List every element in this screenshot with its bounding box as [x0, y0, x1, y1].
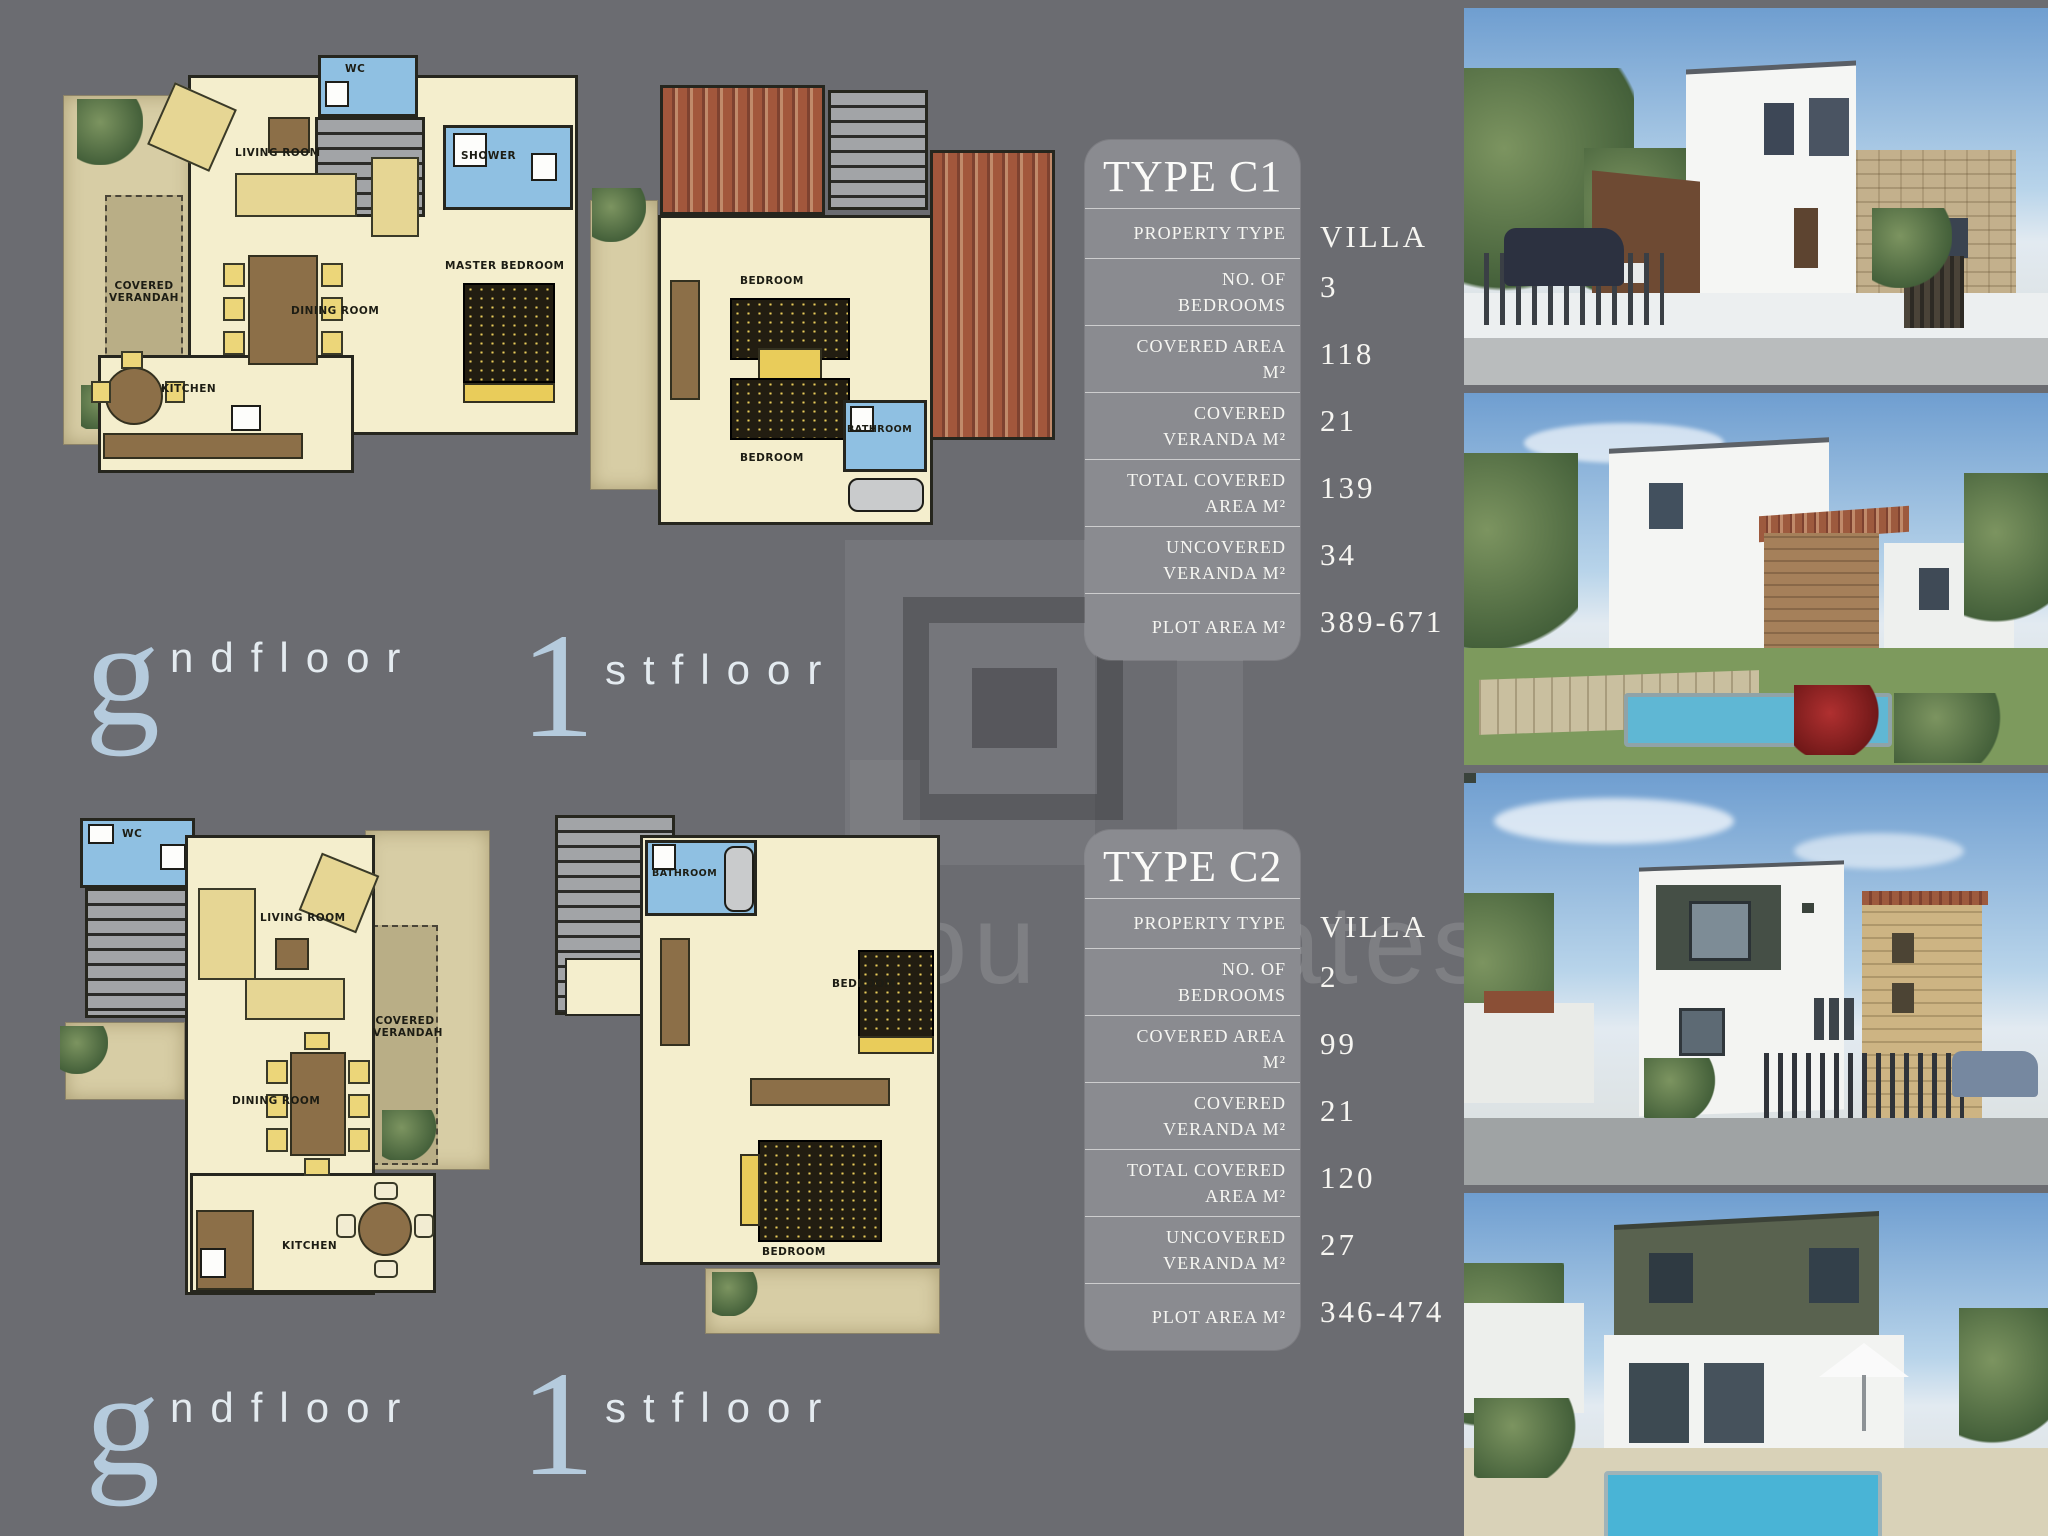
car — [1504, 228, 1624, 286]
stove — [231, 405, 261, 431]
tiled-roof — [660, 85, 825, 215]
wardrobe — [660, 938, 690, 1046]
chair — [414, 1214, 434, 1238]
spec-value: 2 — [1320, 959, 1339, 995]
neighbor-houses — [1464, 1303, 1584, 1413]
spec-value: VILLA — [1320, 909, 1428, 945]
spec-value: 27 — [1320, 1227, 1357, 1263]
staircase — [85, 888, 197, 1018]
railing-gate — [1764, 1053, 1964, 1119]
spec-value: 21 — [1320, 403, 1357, 439]
chair — [223, 331, 245, 355]
window — [1649, 1253, 1693, 1303]
room-label: SHOWER — [461, 150, 516, 162]
spec-panel: TYPE C1 PROPERTY TYPE VILLA NO. OF BEDRO… — [1085, 140, 1300, 660]
spec-value: VILLA — [1320, 219, 1428, 255]
room-label: BEDROOM — [740, 275, 804, 287]
room-label: BEDROOM — [740, 452, 804, 464]
basin — [88, 824, 114, 844]
decor-shape: TOTAL COVERED AREA M² — [1116, 467, 1286, 519]
chair — [348, 1094, 370, 1118]
caption-big-letter: g — [85, 1378, 160, 1471]
umbrella-pole — [1862, 1375, 1866, 1431]
spec-row: TOTAL COVERED AREA M² 139 — [1085, 459, 1300, 526]
spec-row: TOTAL COVERED AREA M² 120 — [1085, 1149, 1300, 1216]
decor-shape: COVERED AREA M² — [1116, 1023, 1286, 1075]
floorplan-c2-ground: COVERED VERANDAH WC LIVING ROOM DINING R… — [60, 810, 490, 1300]
window — [1689, 901, 1751, 961]
chair — [304, 1158, 330, 1176]
caption-rest: ndfloor — [170, 1384, 417, 1432]
decor-shape: PLOT AREA M² — [1116, 1304, 1286, 1330]
room-label: BEDROOM — [762, 1246, 826, 1258]
caption-gnd-floor-c2: g ndfloor — [85, 1378, 417, 1471]
sofa — [371, 157, 419, 237]
spec-value: 99 — [1320, 1026, 1357, 1062]
chair — [336, 1214, 356, 1238]
spec-row: PROPERTY TYPE VILLA — [1085, 898, 1300, 948]
chair — [304, 1032, 330, 1050]
room-label: MASTER BEDROOM — [445, 260, 565, 272]
decor-shape: NO. OF BEDROOMS — [1116, 266, 1286, 318]
car — [1952, 1051, 2038, 1097]
room-label: BEDROOM — [832, 978, 896, 990]
spec-row: COVERED VERANDA M² 21 — [1085, 1082, 1300, 1149]
spec-value: 34 — [1320, 537, 1357, 573]
sofa — [235, 173, 357, 217]
plant — [592, 188, 646, 242]
toilet-fixture — [160, 844, 186, 870]
caption-big-letter: g — [85, 628, 160, 721]
spec-value: 139 — [1320, 470, 1376, 506]
room-label: BATHROOM — [847, 424, 912, 435]
bed — [463, 283, 555, 383]
neighbor-houses — [1464, 1003, 1594, 1103]
decor-shape: COVERED VERANDA M² — [1116, 400, 1286, 452]
villa-photo-4 — [1464, 1193, 2048, 1536]
driveway — [1464, 338, 2048, 385]
room-label: COVERED VERANDAH — [373, 1015, 437, 1039]
bed — [858, 950, 934, 1044]
chair — [321, 263, 343, 287]
decor-shape: NO. OF BEDROOMS — [1116, 956, 1286, 1008]
bed — [730, 378, 850, 440]
spec-value: 389-671 — [1320, 604, 1444, 640]
road — [1464, 1118, 2048, 1185]
caption-big-letter: 1 — [520, 640, 595, 733]
sofa — [245, 978, 345, 1020]
window — [1649, 483, 1683, 529]
window-slit — [1829, 998, 1839, 1040]
window — [1892, 933, 1914, 963]
tiled-roof-cap — [1862, 891, 1988, 905]
bed-foot — [858, 1036, 934, 1054]
patio-door — [1629, 1363, 1689, 1443]
door — [1794, 208, 1818, 268]
room-label: LIVING ROOM — [260, 912, 346, 924]
red-flowers — [1794, 685, 1884, 755]
spec-value: 120 — [1320, 1160, 1376, 1196]
window — [1809, 98, 1849, 156]
room-label: WC — [345, 63, 365, 75]
decor-shape: COVERED AREA M² — [1116, 333, 1286, 385]
caption-big-letter: 1 — [520, 1378, 595, 1471]
room-label: KITCHEN — [282, 1240, 337, 1252]
villa-photo-3 — [1464, 773, 2048, 1185]
bed — [758, 1140, 882, 1242]
coffee-table — [275, 938, 309, 970]
vent — [1802, 903, 1814, 913]
plant — [60, 1026, 108, 1074]
vent — [1464, 773, 1476, 783]
chair — [321, 331, 343, 355]
floorplan-c1-first: BEDROOM BEDROOM BATHROOM — [590, 80, 1060, 530]
shrubs — [1894, 693, 2014, 763]
room-label: DINING ROOM — [232, 1095, 320, 1107]
window — [1892, 983, 1914, 1013]
shrub — [1872, 208, 1952, 288]
chair — [223, 263, 245, 287]
neighbor-roof — [1484, 991, 1554, 1013]
bed-head — [740, 1154, 760, 1226]
patio-door — [1704, 1363, 1764, 1443]
window — [1809, 1248, 1859, 1303]
room-label: COVERED VERANDAH — [107, 280, 181, 304]
caption-rest: stfloor — [605, 1384, 838, 1432]
bathtub — [848, 478, 924, 512]
room-label: DINING ROOM — [291, 305, 379, 317]
trees — [1964, 473, 2048, 643]
cloud — [1494, 798, 1734, 844]
decor-shape: UNCOVERED VERANDA M² — [1116, 534, 1286, 586]
spec-panel: TYPE C2 PROPERTY TYPE VILLA NO. OF BEDRO… — [1085, 830, 1300, 1350]
spec-row: COVERED VERANDA M² 21 — [1085, 392, 1300, 459]
spec-row: COVERED AREA M² 118 — [1085, 325, 1300, 392]
chair — [374, 1182, 398, 1200]
caption-rest: stfloor — [605, 646, 838, 694]
window-slit — [1844, 998, 1854, 1040]
tiled-roof — [930, 150, 1055, 440]
room-label: KITCHEN — [161, 383, 216, 395]
chair — [348, 1128, 370, 1152]
plant — [712, 1272, 758, 1316]
spec-value: 21 — [1320, 1093, 1357, 1129]
window-slit — [1814, 998, 1824, 1040]
wardrobe — [670, 280, 700, 400]
toilet-fixture — [652, 844, 676, 870]
decor-shape: UNCOVERED VERANDA M² — [1116, 1224, 1286, 1276]
stove — [200, 1248, 226, 1278]
spec-row: PROPERTY TYPE VILLA — [1085, 208, 1300, 258]
sofa — [198, 888, 256, 980]
kitchen-counter — [103, 433, 303, 459]
brochure-page: ou Estates COVERED VERANDAH WC SHOWER LI… — [0, 0, 2048, 1536]
kitchen-table — [358, 1202, 412, 1256]
swimming-pool — [1604, 1471, 1882, 1536]
caption-rest: ndfloor — [170, 634, 417, 682]
window — [1919, 568, 1949, 610]
hedge — [1474, 1398, 1584, 1478]
chair — [374, 1260, 398, 1278]
spec-row: PLOT AREA M² 389-671 — [1085, 593, 1300, 660]
spec-table-c2: TYPE C2 PROPERTY TYPE VILLA NO. OF BEDRO… — [1085, 830, 1300, 1350]
toilet-fixture — [531, 153, 557, 181]
chair — [348, 1060, 370, 1084]
chair — [266, 1128, 288, 1152]
room-label: WC — [122, 828, 142, 840]
plant — [382, 1110, 438, 1160]
spec-value: 118 — [1320, 336, 1374, 372]
caption-gnd-floor-c1: g ndfloor — [85, 628, 417, 721]
bed-foot — [463, 383, 555, 403]
spec-table-c1: TYPE C1 PROPERTY TYPE VILLA NO. OF BEDRO… — [1085, 140, 1300, 660]
spec-title: TYPE C2 — [1085, 830, 1300, 898]
toilet-fixture — [325, 81, 349, 107]
trees — [1959, 1308, 2048, 1458]
caption-1st-floor-c2: 1 stfloor — [520, 1378, 838, 1471]
spec-row: NO. OF BEDROOMS 3 — [1085, 258, 1300, 325]
decor-shape: TOTAL COVERED AREA M² — [1116, 1157, 1286, 1209]
shrub — [1644, 1058, 1718, 1122]
trees — [1464, 453, 1578, 673]
window — [1679, 1008, 1725, 1056]
decor-shape: PLOT AREA M² — [1116, 614, 1286, 640]
stone-entrance-tower — [1764, 533, 1879, 658]
decor-shape: PROPERTY TYPE — [1116, 910, 1286, 936]
room-label: BATHROOM — [652, 868, 717, 879]
villa-photo-2 — [1464, 393, 2048, 765]
caption-1st-floor-c1: 1 stfloor — [520, 640, 838, 733]
spec-row: UNCOVERED VERANDA M² 34 — [1085, 526, 1300, 593]
decor-shape: PROPERTY TYPE — [1116, 220, 1286, 246]
spec-value: 3 — [1320, 269, 1339, 305]
cloud — [1794, 833, 1964, 869]
floorplan-c2-first: BATHROOM BEDROOM BEDROOM — [540, 810, 960, 1340]
bathtub — [724, 846, 754, 912]
chair — [91, 381, 111, 403]
spec-value: 346-474 — [1320, 1294, 1444, 1330]
wardrobe — [750, 1078, 890, 1106]
logo-core-square — [972, 668, 1057, 748]
chair — [266, 1060, 288, 1084]
window — [1764, 103, 1794, 155]
spec-row: PLOT AREA M² 346-474 — [1085, 1283, 1300, 1350]
plant — [77, 99, 143, 165]
kitchen-table — [105, 367, 163, 425]
terrace-ground — [590, 200, 658, 490]
floorplan-c1-ground: COVERED VERANDAH WC SHOWER LIVING ROOM D… — [63, 55, 575, 475]
decor-shape: COVERED VERANDA M² — [1116, 1090, 1286, 1142]
spec-row: NO. OF BEDROOMS 2 — [1085, 948, 1300, 1015]
chair — [223, 297, 245, 321]
spec-row: UNCOVERED VERANDA M² 27 — [1085, 1216, 1300, 1283]
chair — [121, 351, 143, 369]
room-label: LIVING ROOM — [235, 147, 321, 159]
villa-photo-1 — [1464, 8, 2048, 385]
spec-title: TYPE C1 — [1085, 140, 1300, 208]
staircase — [828, 90, 928, 210]
spec-row: COVERED AREA M² 99 — [1085, 1015, 1300, 1082]
